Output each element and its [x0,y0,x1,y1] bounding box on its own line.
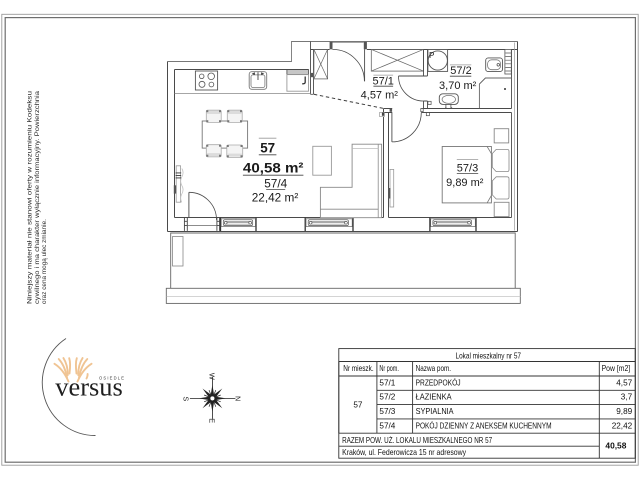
svg-text:9,89 m²: 9,89 m² [446,177,484,189]
svg-text:cywilnego i ma charakter wyłąc: cywilnego i ma charakter wyłącznie infor… [34,90,41,304]
svg-text:57/3: 57/3 [457,162,478,174]
svg-text:Lokal mieszkalny nr 57: Lokal mieszkalny nr 57 [456,352,522,361]
svg-text:57/2: 57/2 [450,65,471,77]
svg-text:57/1: 57/1 [379,378,395,387]
svg-text:Pow [m2]: Pow [m2] [602,364,631,373]
svg-text:Kraków, ul. Federowicza 15 nr: Kraków, ul. Federowicza 15 nr adresowy [342,448,467,457]
svg-text:57: 57 [353,400,363,409]
svg-text:3,7: 3,7 [621,393,633,402]
svg-text:P: P [429,51,435,60]
svg-text:4,57 m²: 4,57 m² [361,90,399,102]
svg-text:E: E [208,418,217,423]
svg-text:57/4: 57/4 [264,177,287,191]
svg-text:ŁAZIENKA: ŁAZIENKA [416,393,452,402]
svg-text:RAZEM POW. UŻ. LOKALU MIESZKAL: RAZEM POW. UŻ. LOKALU MIESZKALNEGO NR 57 [342,435,492,445]
svg-text:40,58 m²: 40,58 m² [243,160,304,176]
svg-text:OSIEDLE: OSIEDLE [99,375,125,380]
svg-text:W: W [207,373,216,380]
svg-text:N: N [234,396,243,401]
svg-text:oraz cena mogą ulec zmianie.: oraz cena mogą ulec zmianie. [41,219,48,304]
svg-text:9,89: 9,89 [616,407,632,416]
svg-text:POKÓJ DZIENNY Z ANEKSEM KUCHEN: POKÓJ DZIENNY Z ANEKSEM KUCHENNYM [416,420,552,430]
svg-text:4,57: 4,57 [616,378,632,387]
svg-text:57: 57 [260,141,275,156]
svg-text:SYPIALNIA: SYPIALNIA [416,407,454,416]
svg-text:57/4: 57/4 [379,421,395,430]
svg-text:3,70 m²: 3,70 m² [439,80,477,92]
svg-text:57/2: 57/2 [379,393,395,402]
svg-text:Nr mieszk.: Nr mieszk. [343,364,374,373]
svg-text:Nr pom.: Nr pom. [379,364,399,373]
svg-text:57/3: 57/3 [379,407,395,416]
svg-text:22,42 m²: 22,42 m² [252,190,299,204]
svg-text:PRZEDPOKÓJ: PRZEDPOKÓJ [416,377,461,387]
svg-text:22,42: 22,42 [612,421,633,430]
svg-text:40,58: 40,58 [605,440,626,450]
svg-text:Niniejszy materiał nie stanowi: Niniejszy materiał nie stanowi oferty w … [27,90,34,304]
svg-text:Nazwa pom.: Nazwa pom. [416,364,452,373]
svg-text:S: S [182,396,191,401]
